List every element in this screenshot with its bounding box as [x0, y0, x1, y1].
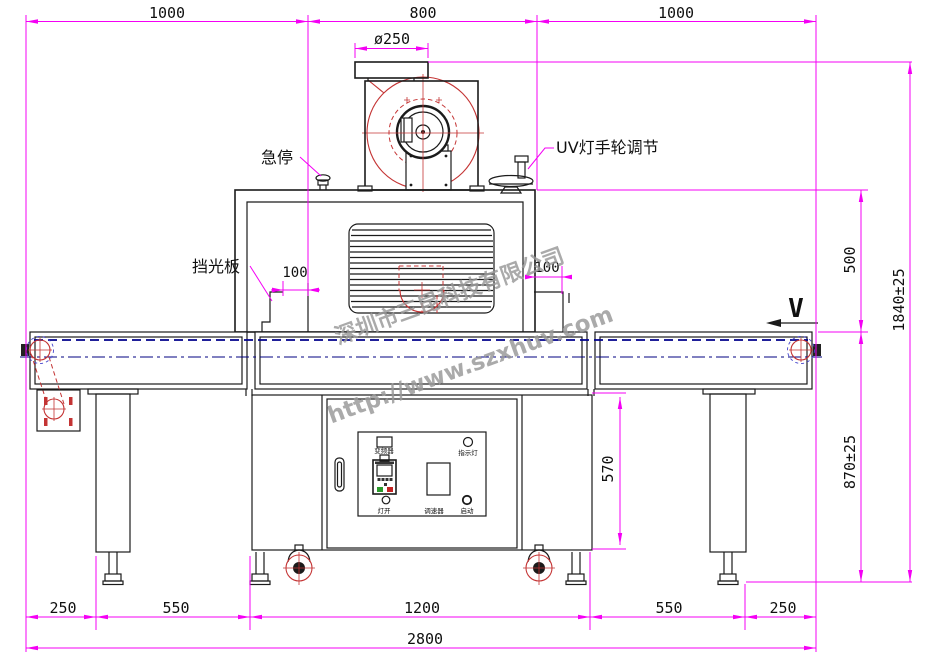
start-label: 启动	[461, 506, 475, 515]
dim-500-text: 500	[841, 246, 859, 273]
belt-direction-arrow: V	[766, 294, 818, 327]
leveling-foot-4	[718, 552, 738, 585]
dim-total-height: 1840±25	[890, 62, 910, 582]
dim-top-right: 1000	[658, 4, 694, 22]
bearing-block-left	[21, 344, 29, 356]
blower-fan	[355, 62, 484, 192]
motor-terminal-box	[401, 118, 412, 142]
dim-top-left: 1000	[149, 4, 185, 22]
dim-belt-height: 870±25	[841, 332, 861, 582]
light-shield-bracket-left	[262, 292, 283, 332]
caster-left	[283, 545, 315, 585]
dim-flange: ø250	[355, 30, 428, 49]
uv-machine-drawing: 变频器 指示灯 灯开 调速器 启动 V	[0, 0, 926, 665]
technical-drawing-canvas: 变频器 指示灯 灯开 调速器 启动 V	[0, 0, 926, 665]
leveling-foot-3	[566, 552, 586, 585]
left-leg	[88, 389, 138, 552]
control-cabinet: 变频器 指示灯 灯开 调速器 启动	[252, 395, 592, 550]
uv-handwheel	[489, 156, 533, 193]
dim-gap-left-text: 100	[282, 265, 307, 281]
vfd-inverter[interactable]	[373, 455, 396, 494]
dim-cabinet-height: 570	[599, 397, 620, 545]
leveling-feet	[103, 552, 738, 585]
dim-bottom-3: 1200	[404, 599, 440, 617]
cabinet-door	[327, 399, 517, 548]
emergency-stop-label: 急停	[261, 148, 293, 167]
dim-bottom-2: 550	[162, 599, 189, 617]
emergency-stop-button	[316, 175, 330, 190]
dim-570-text: 570	[599, 455, 617, 482]
start-button[interactable]	[463, 496, 471, 504]
dim-bottom-1: 250	[49, 599, 76, 617]
uv-handwheel-label: UV灯手轮调节	[556, 138, 659, 157]
dim-2800-text: 2800	[407, 630, 443, 648]
exhaust-cap	[355, 62, 428, 78]
dim-flange-text: ø250	[374, 30, 410, 48]
leveling-foot-1	[103, 552, 123, 585]
inverter-label: 变频器	[374, 446, 394, 455]
dim-1840-text: 1840±25	[890, 268, 908, 331]
dim-lamp-to-belt: 500	[841, 190, 861, 332]
dim-top-middle: 800	[409, 4, 436, 22]
dim-gap-left: 100	[271, 265, 320, 292]
speed-controller-label: 调速器	[424, 506, 444, 515]
leader-light-shield	[250, 266, 272, 301]
speed-controller-slot[interactable]	[427, 463, 450, 495]
belt-direction-letter: V	[788, 294, 804, 324]
dim-total-width: 2800	[26, 630, 816, 648]
lamp-on-button[interactable]	[382, 496, 390, 504]
indicator-light	[464, 438, 473, 447]
dim-870-text: 870±25	[841, 435, 859, 489]
dim-bottom-4: 550	[655, 599, 682, 617]
caster-right	[523, 545, 555, 585]
leveling-foot-2	[250, 552, 270, 585]
dim-bottom-5: 250	[769, 599, 796, 617]
door-handle[interactable]	[335, 458, 344, 491]
light-shield-label: 挡光板	[192, 257, 240, 276]
right-leg	[703, 389, 755, 552]
dim-top-row: 1000 800 1000	[26, 4, 816, 22]
indicator-label: 指示灯	[458, 448, 478, 457]
dim-bottom-row: 250 550 1200 550 250	[26, 599, 816, 617]
control-panel: 变频器 指示灯 灯开 调速器 启动	[358, 432, 486, 516]
lamp-on-label: 灯开	[378, 506, 392, 515]
nameplate	[377, 437, 392, 447]
leader-emergency-stop	[300, 157, 321, 176]
leader-uv-handwheel	[528, 148, 554, 169]
